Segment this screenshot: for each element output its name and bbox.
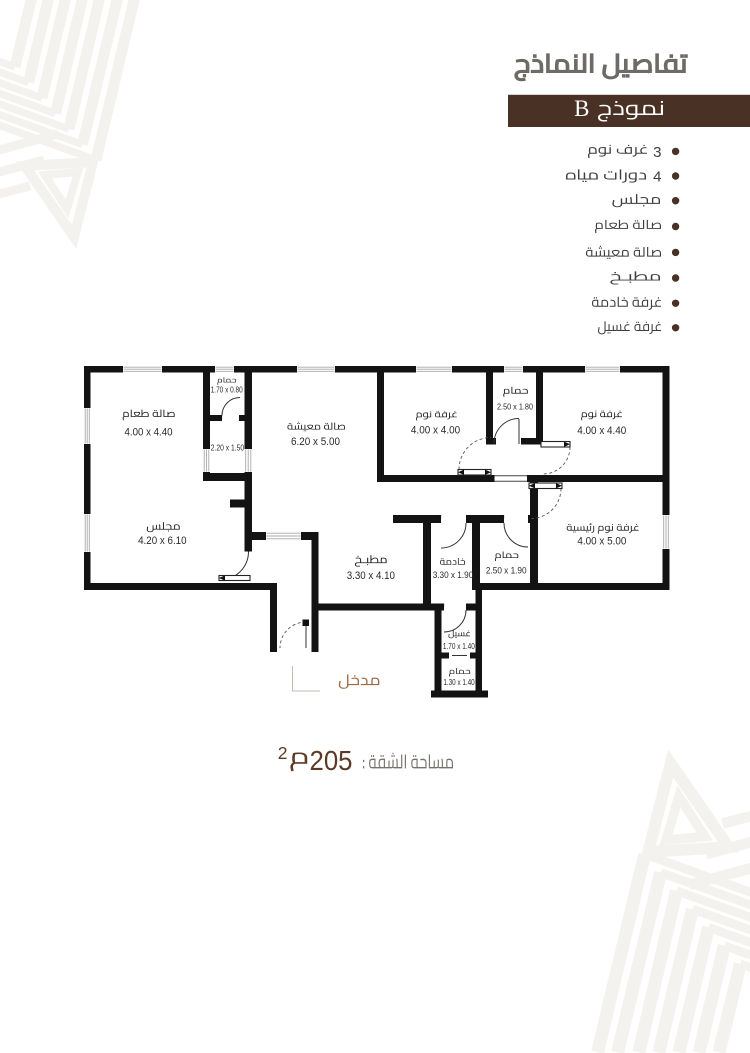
svg-text:1.30 x 1.40: 1.30 x 1.40 bbox=[443, 678, 475, 687]
svg-text:3: 3 bbox=[653, 144, 661, 161]
svg-text:4.00 x 4.00: 4.00 x 4.00 bbox=[411, 425, 460, 437]
svg-text:1.70 x 1.40: 1.70 x 1.40 bbox=[443, 642, 475, 651]
svg-text:4.20 x 6.10: 4.20 x 6.10 bbox=[138, 535, 187, 547]
svg-text:6.20 x 5.00: 6.20 x 5.00 bbox=[291, 436, 340, 448]
svg-text:2.50 x 1.90: 2.50 x 1.90 bbox=[486, 566, 527, 576]
svg-text:2.20 x 1.50: 2.20 x 1.50 bbox=[211, 444, 245, 453]
svg-text:3.30 x 1.90: 3.30 x 1.90 bbox=[433, 570, 474, 580]
svg-text:2: 2 bbox=[278, 743, 288, 763]
svg-text:B: B bbox=[574, 96, 589, 121]
svg-text:3.30 x 4.10: 3.30 x 4.10 bbox=[347, 570, 395, 582]
svg-text:205: 205 bbox=[310, 745, 353, 776]
svg-text:4: 4 bbox=[653, 169, 661, 186]
svg-text:1.70 x 0.80: 1.70 x 0.80 bbox=[211, 386, 244, 395]
svg-text:4.00 x 4.40: 4.00 x 4.40 bbox=[125, 426, 173, 438]
svg-text:4.00 x 5.00: 4.00 x 5.00 bbox=[577, 536, 626, 548]
svg-text:2.50 x 1.80: 2.50 x 1.80 bbox=[497, 402, 533, 412]
svg-text:4.00 x 4.40: 4.00 x 4.40 bbox=[577, 425, 626, 437]
